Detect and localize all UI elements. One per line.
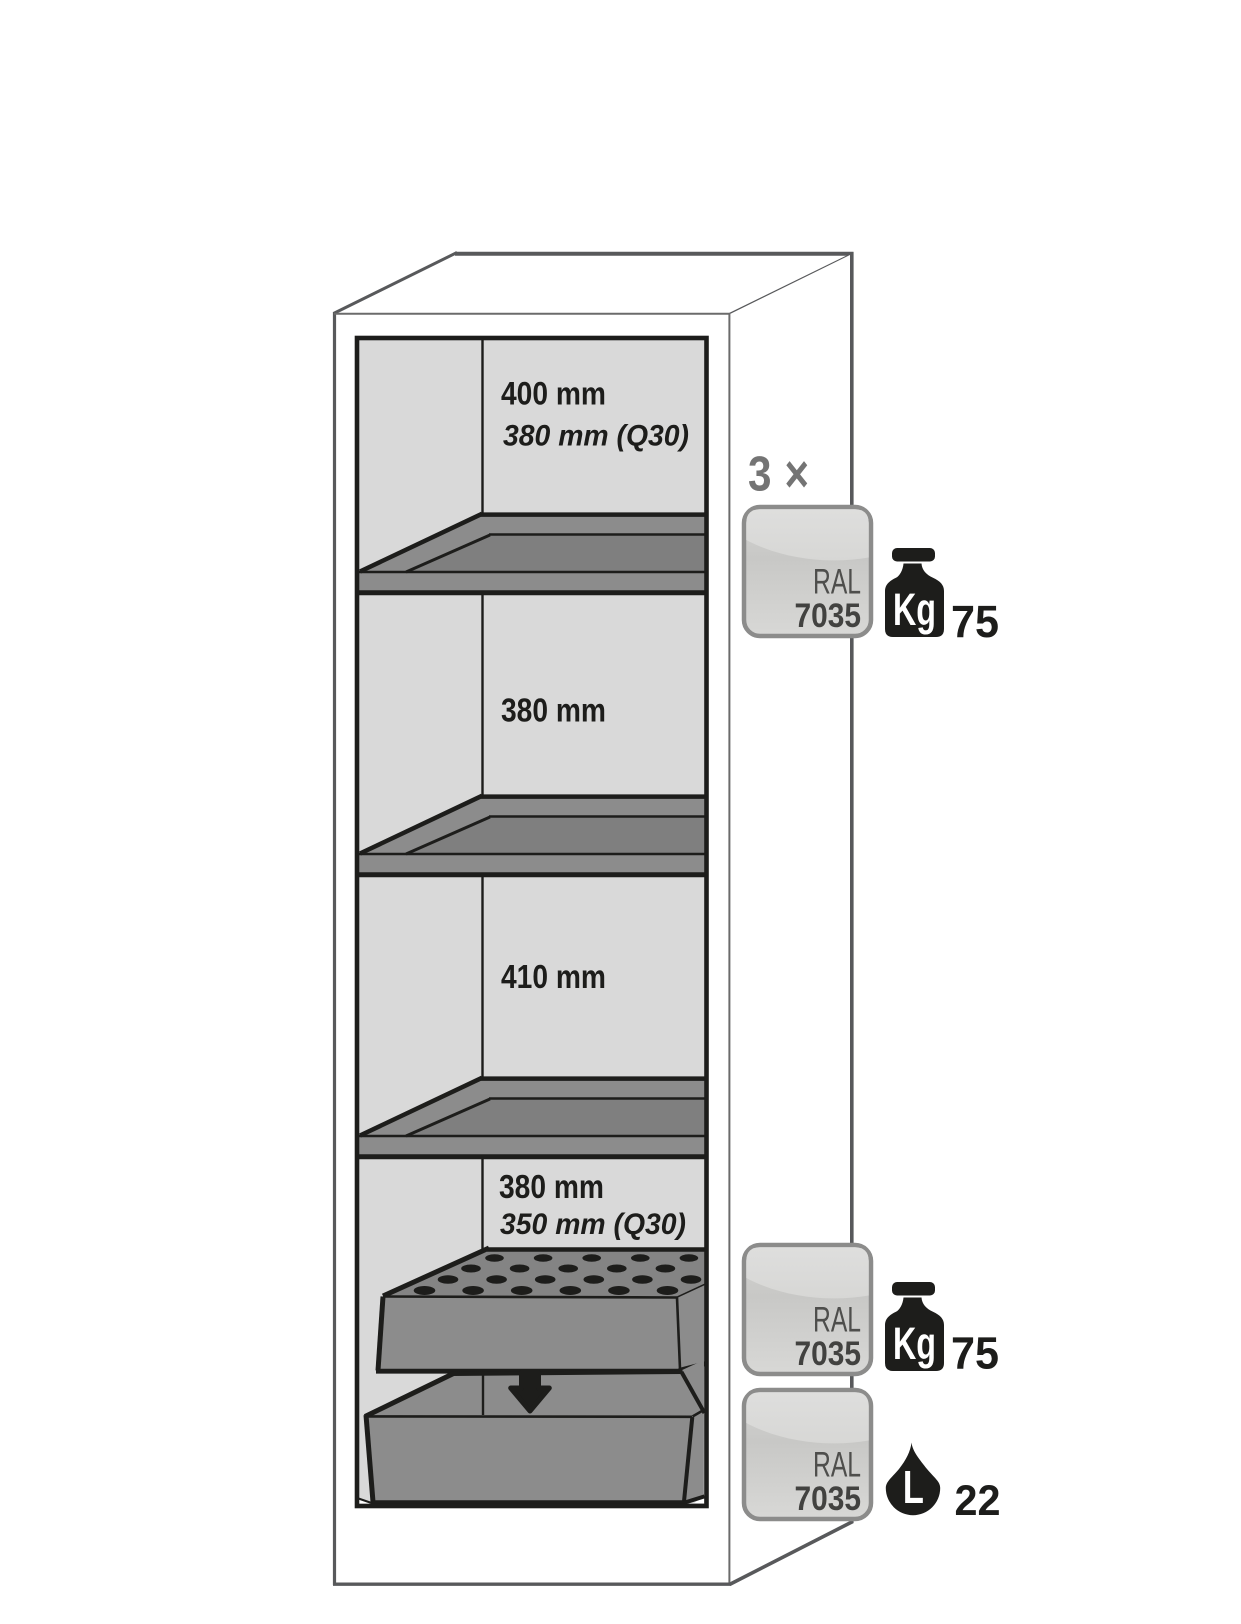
svg-text:3: 3 — [748, 448, 772, 502]
svg-text:350 mm (Q30): 350 mm (Q30) — [500, 1208, 686, 1241]
svg-text:22: 22 — [955, 1477, 1001, 1525]
svg-text:L: L — [903, 1461, 924, 1513]
svg-text:380 mm: 380 mm — [499, 1168, 604, 1205]
svg-text:380 mm: 380 mm — [501, 692, 606, 729]
svg-text:×: × — [785, 445, 810, 504]
svg-text:400 mm: 400 mm — [501, 376, 606, 412]
svg-text:380 mm (Q30): 380 mm (Q30) — [503, 420, 689, 453]
svg-text:75: 75 — [951, 596, 999, 647]
svg-text:75: 75 — [951, 1328, 999, 1379]
svg-text:410 mm: 410 mm — [501, 958, 606, 995]
